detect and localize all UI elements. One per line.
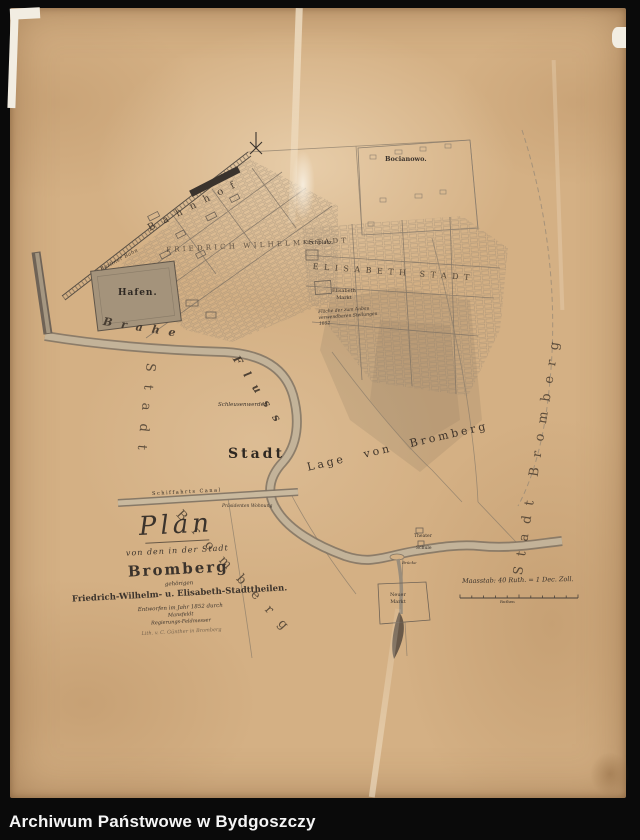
archive-scan: Bahnhof Berliner Bahn FRIEDRICH WILHELM … [0, 0, 640, 840]
neuer-markt-line2: Markt [390, 599, 406, 606]
kirchplatz-label: Kirchplatz. [303, 240, 334, 246]
neuer-markt-label: Neuer Markt [390, 592, 406, 606]
bruecke-label: Brücke [402, 561, 416, 566]
title-cartouche: Plan von den in der Stadt Bromberg gehör… [53, 506, 304, 642]
theater-label: Theater [414, 534, 432, 539]
map-paper [10, 8, 626, 798]
bocianowo-label: Bocianowo. [385, 156, 427, 163]
elisabeth-markt-label: Elisabeth Markt [332, 288, 356, 301]
schule-label: Schule [416, 546, 432, 551]
neuer-markt-line1: Neuer [390, 592, 406, 599]
hafen-label: Hafen. [118, 288, 158, 298]
elisabeth-markt-line2: Markt [332, 295, 356, 302]
elisabeth-markt-line1: Elisabeth [332, 288, 356, 295]
scale-unit-label: Ruthen [500, 600, 515, 605]
archive-name: Archiwum Państwowe w Bydgoszczy [9, 812, 316, 832]
center-stadt-label: Stadt [228, 446, 285, 462]
archive-footer-bar: Archiwum Państwowe w Bydgoszczy [0, 804, 640, 840]
